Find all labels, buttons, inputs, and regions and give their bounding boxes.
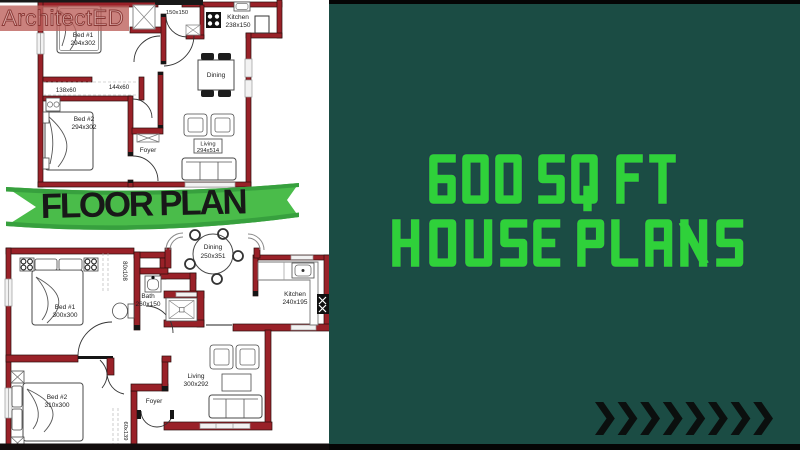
svg-text:Bed #2: Bed #2 bbox=[74, 116, 95, 123]
svg-text:Bath: Bath bbox=[141, 293, 155, 300]
svg-text:310x300: 310x300 bbox=[45, 402, 70, 409]
svg-text:Bed #1: Bed #1 bbox=[55, 304, 76, 311]
svg-text:250x351: 250x351 bbox=[201, 253, 226, 260]
svg-text:144x60: 144x60 bbox=[109, 84, 130, 91]
svg-text:150x150: 150x150 bbox=[166, 10, 188, 16]
svg-text:300x292: 300x292 bbox=[184, 381, 209, 388]
svg-text:240x195: 240x195 bbox=[283, 299, 308, 306]
svg-text:138x60: 138x60 bbox=[56, 87, 77, 94]
svg-text:238x150: 238x150 bbox=[226, 22, 251, 29]
svg-text:Kitchen: Kitchen bbox=[284, 291, 306, 298]
svg-text:FLOOR PLAN: FLOOR PLAN bbox=[40, 182, 248, 226]
svg-text:294x302: 294x302 bbox=[71, 40, 96, 47]
svg-text:294x514: 294x514 bbox=[197, 148, 220, 154]
svg-text:Bed #2: Bed #2 bbox=[47, 394, 68, 401]
svg-text:Living: Living bbox=[188, 373, 205, 380]
svg-text:260x150: 260x150 bbox=[136, 301, 161, 308]
svg-text:300x300: 300x300 bbox=[53, 312, 78, 319]
svg-text:60x139: 60x139 bbox=[122, 421, 128, 440]
svg-text:Kitchen: Kitchen bbox=[227, 14, 249, 21]
svg-text:Dining: Dining bbox=[204, 244, 223, 251]
svg-text:Bed #1: Bed #1 bbox=[73, 32, 94, 39]
svg-text:294x302: 294x302 bbox=[72, 124, 97, 131]
svg-text:Dining: Dining bbox=[207, 72, 226, 79]
svg-text:Foyer: Foyer bbox=[146, 398, 163, 405]
svg-text:ArchitectED: ArchitectED bbox=[2, 6, 124, 31]
svg-text:Living: Living bbox=[200, 142, 215, 148]
svg-text:80x108: 80x108 bbox=[121, 261, 127, 281]
svg-text:Foyer: Foyer bbox=[140, 147, 157, 154]
